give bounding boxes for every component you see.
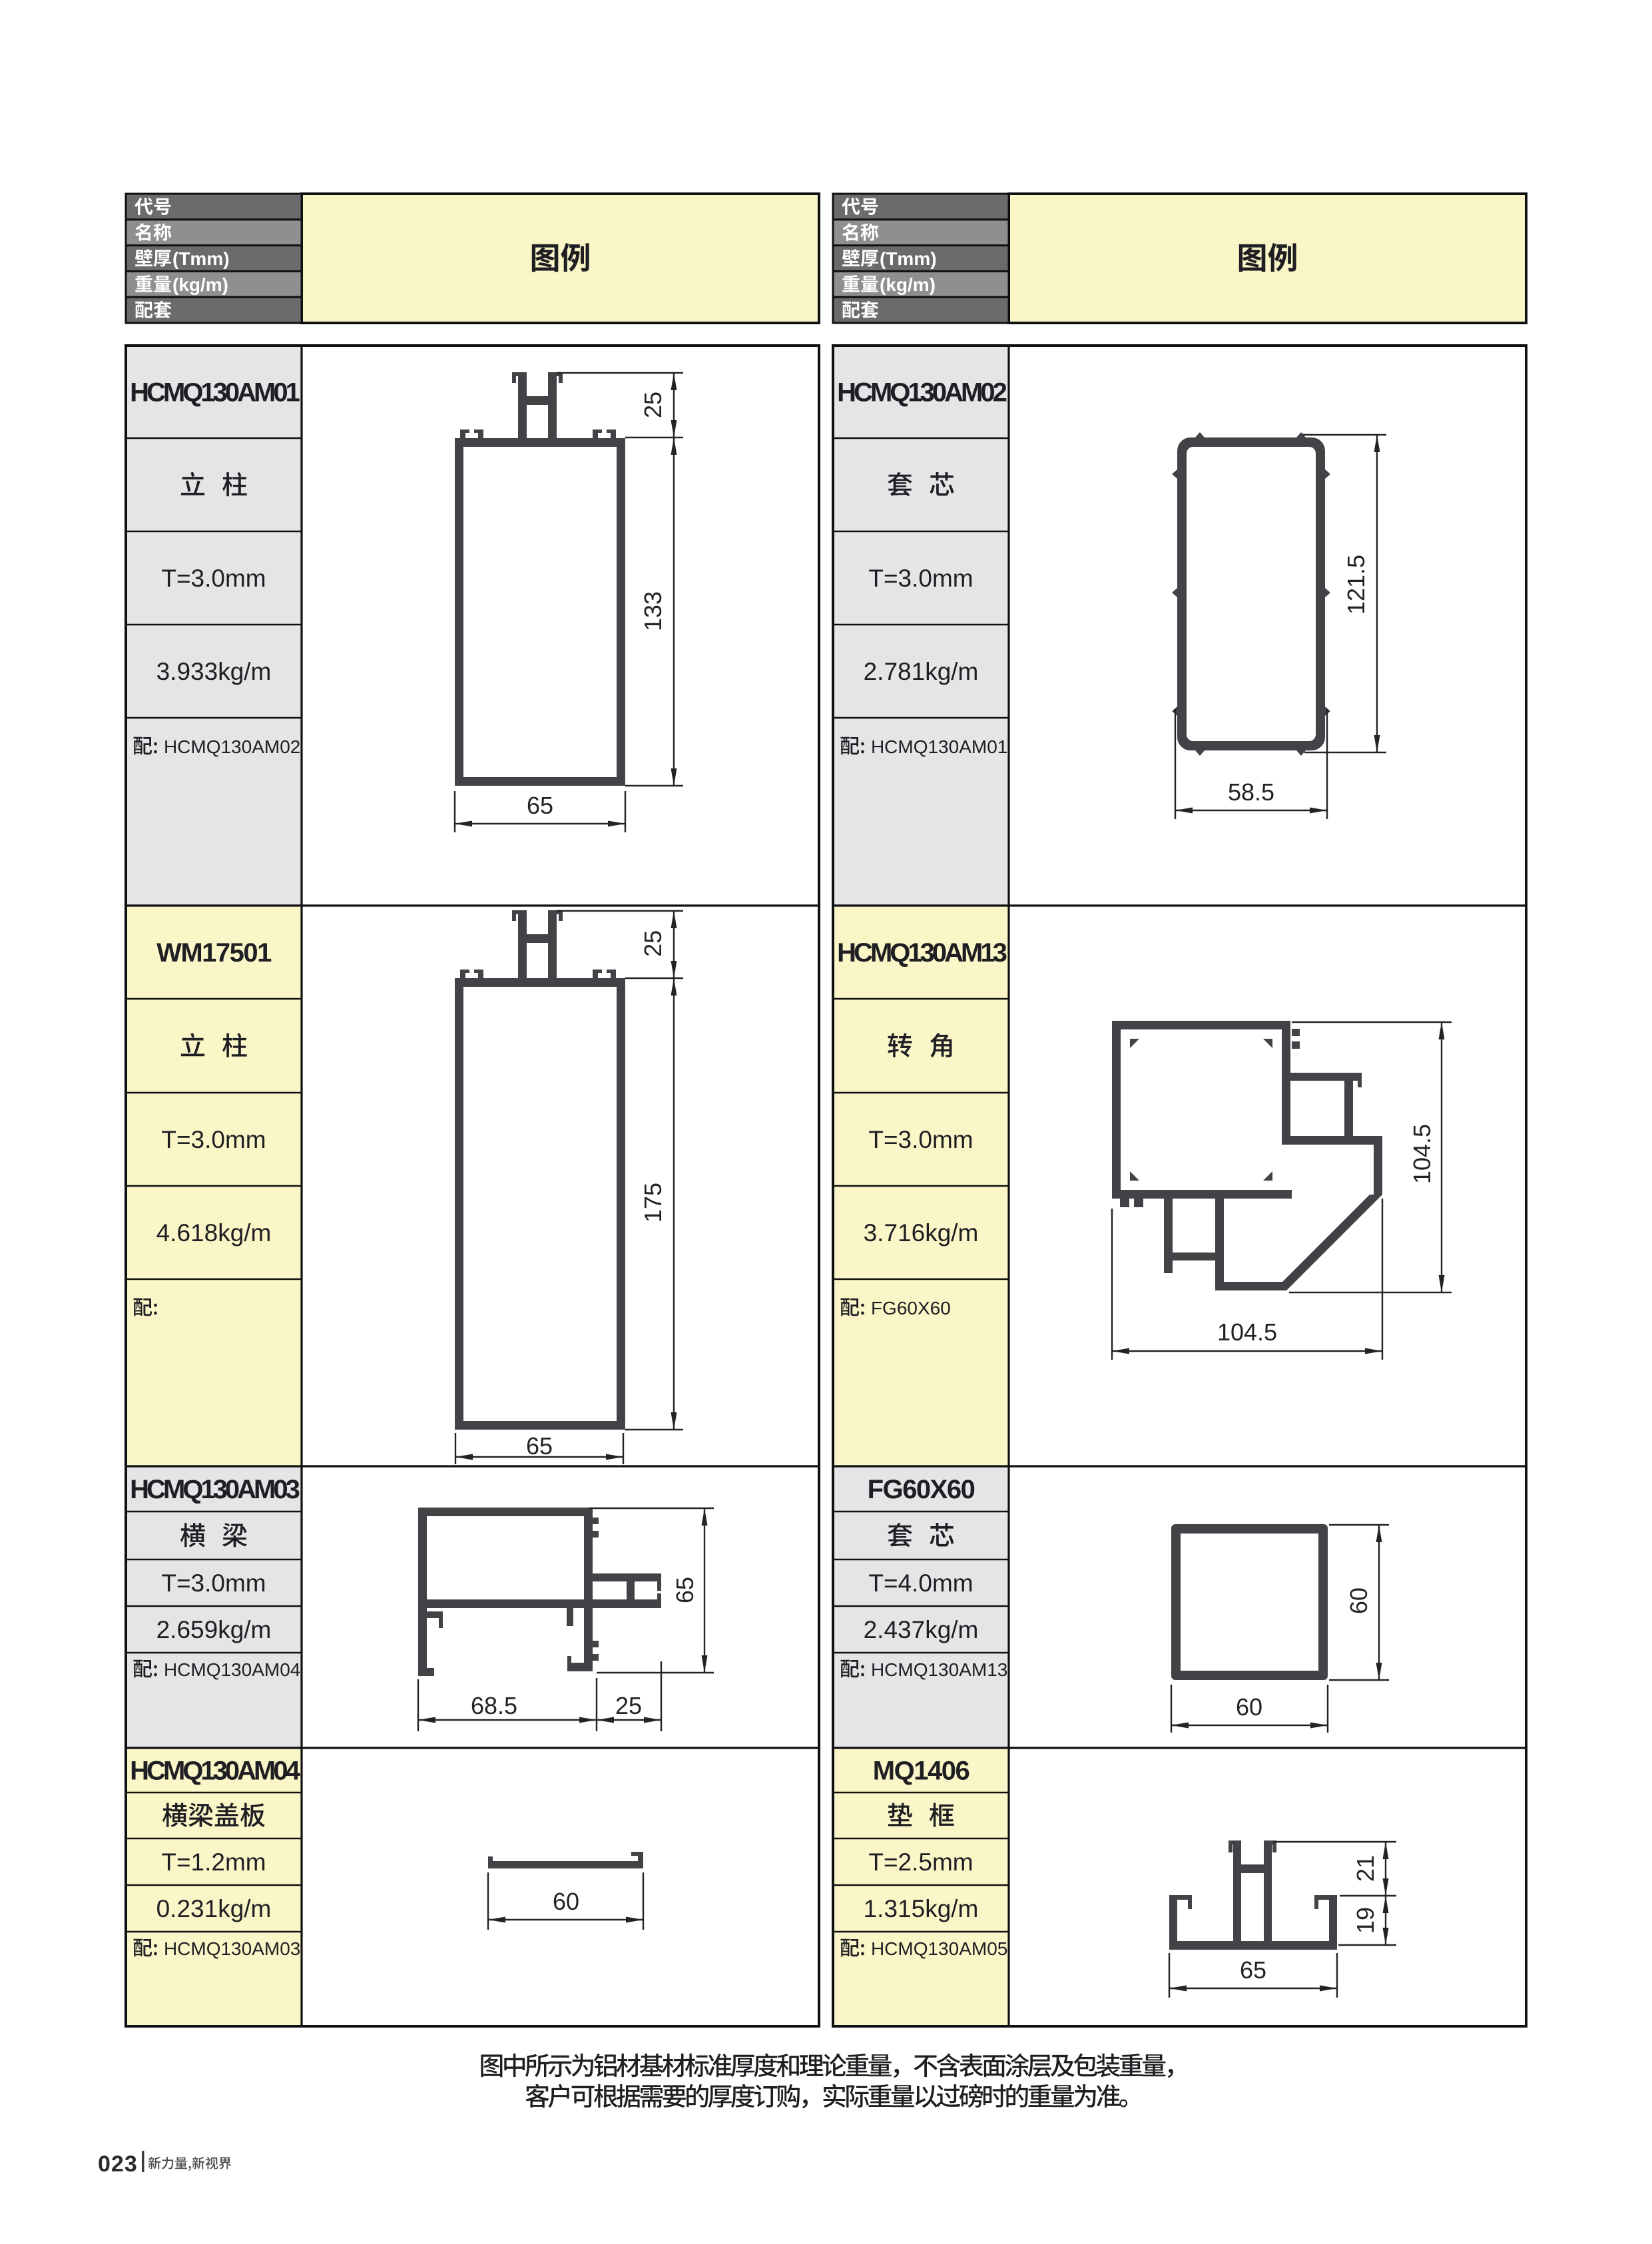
svg-text:HCMQ130AM04: HCMQ130AM04 [130,1757,300,1786]
svg-text:3.933kg/m: 3.933kg/m [156,658,272,685]
svg-text:(kg/m): (kg/m) [880,274,936,295]
svg-text:HCMQ130AM13: HCMQ130AM13 [871,1659,1007,1680]
svg-text:65: 65 [527,792,553,819]
svg-text:MQ1406: MQ1406 [873,1757,969,1786]
svg-text:121.5: 121.5 [1342,555,1370,615]
svg-text:60: 60 [553,1888,579,1915]
svg-text:25: 25 [615,1692,642,1719]
svg-text:60: 60 [1345,1587,1372,1614]
svg-text:HCMQ130AM02: HCMQ130AM02 [164,736,300,757]
svg-text:58.5: 58.5 [1228,778,1274,806]
svg-text:175: 175 [639,1183,667,1223]
svg-text:104.5: 104.5 [1408,1124,1436,1184]
svg-text:T=3.0mm: T=3.0mm [868,1126,973,1153]
svg-text:2.781kg/m: 2.781kg/m [864,658,979,685]
svg-text:HCMQ130AM01: HCMQ130AM01 [871,736,1007,757]
svg-text:FG60X60: FG60X60 [868,1475,975,1504]
svg-text:2.437kg/m: 2.437kg/m [864,1616,979,1643]
svg-text:T=3.0mm: T=3.0mm [161,1569,266,1597]
svg-text:133: 133 [639,591,667,631]
svg-text:T=3.0mm: T=3.0mm [868,565,973,592]
svg-text:4.618kg/m: 4.618kg/m [156,1219,272,1247]
svg-text:104.5: 104.5 [1217,1318,1277,1346]
svg-text:HCMQ130AM13: HCMQ130AM13 [837,938,1006,968]
svg-text:1.315kg/m: 1.315kg/m [864,1895,979,1922]
svg-text:HCMQ130AM03: HCMQ130AM03 [164,1938,300,1959]
svg-text:T=1.2mm: T=1.2mm [161,1848,266,1876]
svg-text:T=4.0mm: T=4.0mm [868,1569,973,1597]
svg-text:HCMQ130AM04: HCMQ130AM04 [164,1659,300,1680]
svg-text:HCMQ130AM05: HCMQ130AM05 [871,1938,1007,1959]
svg-text:2.659kg/m: 2.659kg/m [156,1616,272,1643]
svg-text:19: 19 [1352,1907,1379,1934]
svg-text:023: 023 [98,2151,138,2177]
svg-text:21: 21 [1352,1855,1379,1882]
svg-text:0.231kg/m: 0.231kg/m [156,1895,272,1922]
svg-text:3.716kg/m: 3.716kg/m [864,1219,979,1247]
svg-text:WM17501: WM17501 [156,938,272,968]
svg-text:T=3.0mm: T=3.0mm [161,1126,266,1153]
svg-text:65: 65 [526,1432,553,1460]
svg-text:HCMQ130AM03: HCMQ130AM03 [130,1475,299,1504]
svg-text:65: 65 [671,1577,698,1603]
svg-text:T=3.0mm: T=3.0mm [161,565,266,592]
svg-text:(Tmm): (Tmm) [880,248,937,269]
svg-text:HCMQ130AM02: HCMQ130AM02 [837,378,1006,408]
svg-text:68.5: 68.5 [471,1692,517,1719]
svg-text:(kg/m): (kg/m) [172,274,228,295]
svg-text:60: 60 [1236,1693,1262,1721]
svg-text:(Tmm): (Tmm) [172,248,230,269]
svg-text:65: 65 [1240,1956,1266,1984]
svg-text:25: 25 [639,930,667,957]
svg-text:T=2.5mm: T=2.5mm [868,1848,973,1876]
svg-text:25: 25 [639,392,667,418]
svg-text:FG60X60: FG60X60 [871,1298,951,1318]
svg-text:HCMQ130AM01: HCMQ130AM01 [130,378,300,408]
